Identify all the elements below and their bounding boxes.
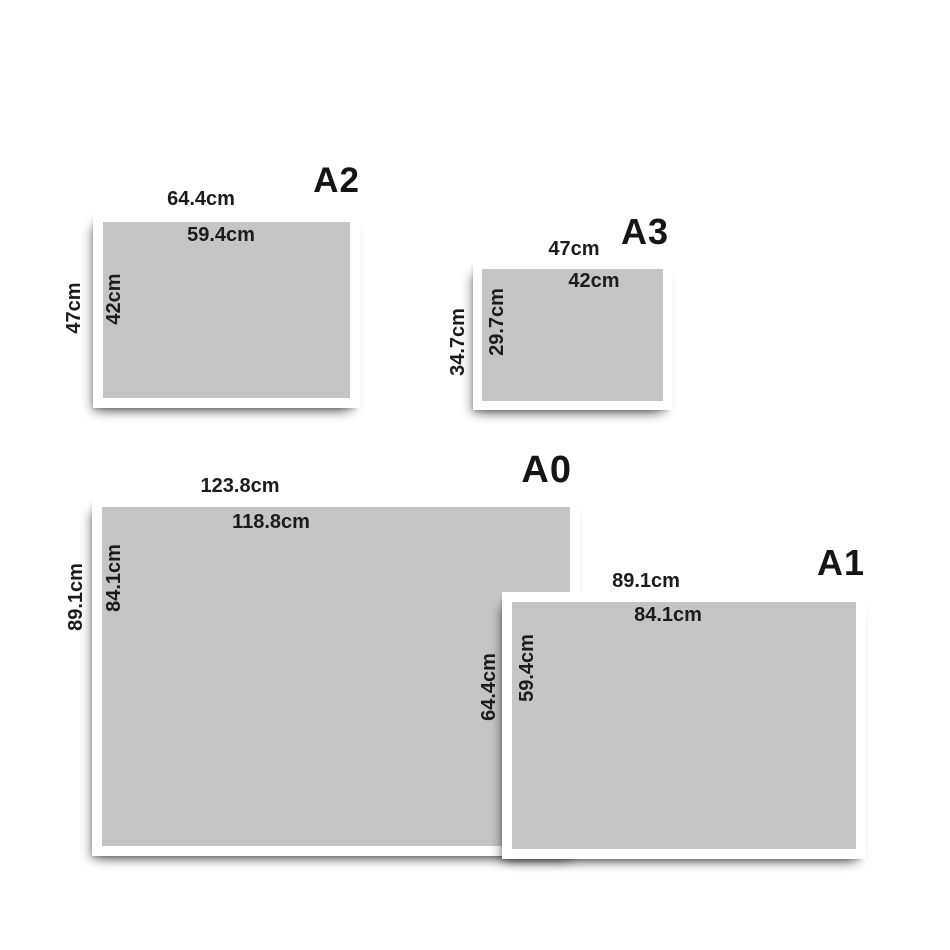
picture-frame <box>502 592 866 859</box>
outer-width-label: 123.8cm <box>201 475 280 497</box>
size-title: A2 <box>313 163 360 198</box>
outer-height-label: 47cm <box>63 282 85 333</box>
size-title: A3 <box>621 214 669 250</box>
size-group-a2: A2 64.4cm 59.4cm 47cm 42cm <box>93 212 360 408</box>
inner-width-label: 118.8cm <box>232 511 310 533</box>
inner-height-label: 84.1cm <box>103 544 125 612</box>
outer-width-label: 64.4cm <box>167 188 235 210</box>
inner-height-label: 29.7cm <box>486 288 508 356</box>
outer-height-label: 34.7cm <box>447 308 469 376</box>
size-guide-canvas: A2 64.4cm 59.4cm 47cm 42cm A3 47cm 42cm … <box>0 0 950 950</box>
inner-width-label: 59.4cm <box>187 224 255 246</box>
outer-width-label: 47cm <box>548 238 599 260</box>
mat-area <box>512 602 856 849</box>
size-group-a3: A3 47cm 42cm 34.7cm 29.7cm <box>473 260 672 410</box>
inner-width-label: 84.1cm <box>634 604 702 626</box>
size-title: A0 <box>521 451 572 489</box>
outer-width-label: 89.1cm <box>612 570 680 592</box>
inner-height-label: 59.4cm <box>516 634 538 702</box>
inner-width-label: 42cm <box>568 270 619 292</box>
size-title: A1 <box>817 545 865 581</box>
size-group-a1: A1 89.1cm 84.1cm 64.4cm 59.4cm <box>502 592 866 859</box>
mat-area <box>103 222 350 398</box>
outer-height-label: 64.4cm <box>478 653 500 721</box>
outer-height-label: 89.1cm <box>65 563 87 631</box>
inner-height-label: 42cm <box>103 273 125 324</box>
